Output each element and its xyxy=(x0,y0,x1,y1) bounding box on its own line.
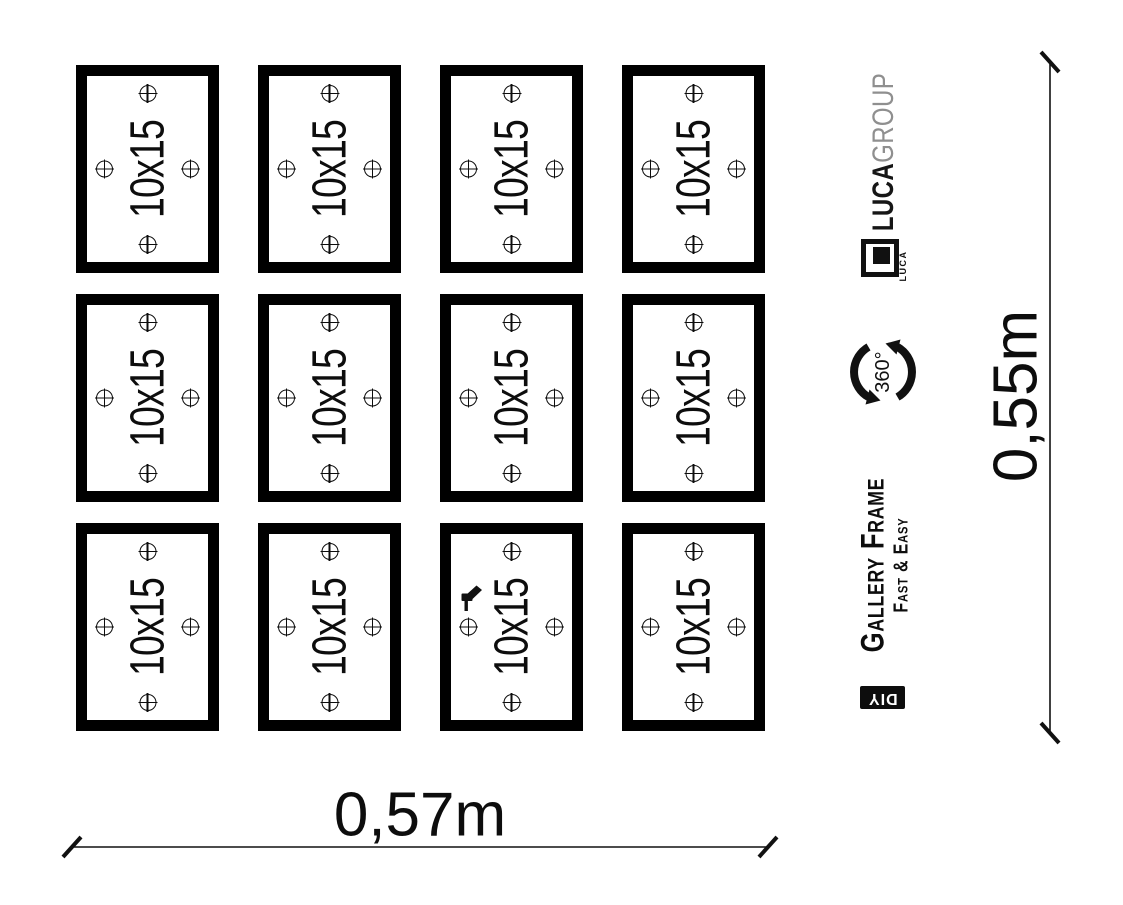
frame-size-label: 10x15 xyxy=(120,120,175,218)
photo-frame: 10x15 xyxy=(76,523,219,731)
layout-diagram: 10x15 10x15 10x15 10x15 xyxy=(0,0,1123,905)
photo-frame: 10x15 xyxy=(258,523,401,731)
crosshair-icon xyxy=(503,236,520,253)
drill-icon xyxy=(459,580,485,614)
crosshair-icon xyxy=(139,465,156,482)
crosshair-icon xyxy=(503,85,520,102)
width-dimension-label: 0,57m xyxy=(334,780,506,851)
brand-suffix: GROUP xyxy=(867,73,900,163)
frame-size-label: 10x15 xyxy=(484,120,539,218)
photo-frame: 10x15 xyxy=(622,523,765,731)
diy-label: DIY xyxy=(868,689,898,707)
product-wordmark: Gallery Frame Fast & Easy xyxy=(857,478,912,653)
frame-size-label: 10x15 xyxy=(302,120,357,218)
crosshair-icon xyxy=(685,85,702,102)
frame-size-label: 10x15 xyxy=(484,349,539,447)
crosshair-icon xyxy=(278,161,295,178)
crosshair-icon xyxy=(503,694,520,711)
crosshair-icon xyxy=(96,161,113,178)
crosshair-icon xyxy=(321,236,338,253)
diy-badge: DIY xyxy=(860,686,905,709)
crosshair-icon xyxy=(728,619,745,636)
crosshair-icon xyxy=(642,619,659,636)
frame-grid: 10x15 10x15 10x15 10x15 xyxy=(76,65,765,731)
crosshair-icon xyxy=(685,314,702,331)
frame-size-label: 10x15 xyxy=(302,578,357,676)
frame-size-label: 10x15 xyxy=(666,578,721,676)
crosshair-icon xyxy=(642,390,659,407)
product-name: Gallery Frame xyxy=(857,478,889,653)
height-dimension-label: 0,55m xyxy=(981,310,1052,482)
brand-logo-square xyxy=(873,247,890,264)
crosshair-icon xyxy=(321,465,338,482)
rotation-degrees-label: 360° xyxy=(872,351,894,392)
photo-frame: 10x15 xyxy=(440,294,583,502)
crosshair-icon xyxy=(728,390,745,407)
frame-size-label: 10x15 xyxy=(484,578,539,676)
crosshair-icon xyxy=(685,694,702,711)
crosshair-icon xyxy=(728,161,745,178)
crosshair-icon xyxy=(96,619,113,636)
photo-frame: 10x15 xyxy=(440,523,583,731)
crosshair-icon xyxy=(139,236,156,253)
crosshair-icon xyxy=(503,543,520,560)
crosshair-icon xyxy=(96,390,113,407)
crosshair-icon xyxy=(321,85,338,102)
frame-size-label: 10x15 xyxy=(120,578,175,676)
brand-wordmark: LUCAGROUP xyxy=(867,73,901,231)
frame-size-label: 10x15 xyxy=(666,349,721,447)
crosshair-icon xyxy=(139,694,156,711)
crosshair-icon xyxy=(503,465,520,482)
photo-frame: 10x15 xyxy=(622,65,765,273)
crosshair-icon xyxy=(364,619,381,636)
crosshair-icon xyxy=(685,465,702,482)
crosshair-icon xyxy=(546,161,563,178)
crosshair-icon xyxy=(139,543,156,560)
crosshair-icon xyxy=(364,390,381,407)
crosshair-icon xyxy=(321,543,338,560)
photo-frame: 10x15 xyxy=(76,65,219,273)
crosshair-icon xyxy=(685,543,702,560)
brand-logo-caption: LUCA xyxy=(898,251,908,282)
photo-frame: 10x15 xyxy=(76,294,219,502)
brand-name: LUCA xyxy=(867,163,900,231)
crosshair-icon xyxy=(685,236,702,253)
crosshair-icon xyxy=(182,161,199,178)
frame-size-label: 10x15 xyxy=(302,349,357,447)
rotation-arrows-icon: 360° xyxy=(844,333,922,411)
brand-logo-icon xyxy=(861,239,899,277)
crosshair-icon xyxy=(139,85,156,102)
crosshair-icon xyxy=(278,390,295,407)
crosshair-icon xyxy=(503,314,520,331)
crosshair-icon xyxy=(460,161,477,178)
frame-size-label: 10x15 xyxy=(120,349,175,447)
crosshair-icon xyxy=(321,694,338,711)
crosshair-icon xyxy=(460,390,477,407)
frame-size-label: 10x15 xyxy=(666,120,721,218)
product-tagline: Fast & Easy xyxy=(892,478,912,653)
photo-frame: 10x15 xyxy=(440,65,583,273)
crosshair-icon xyxy=(139,314,156,331)
photo-frame: 10x15 xyxy=(622,294,765,502)
crosshair-icon xyxy=(182,619,199,636)
crosshair-icon xyxy=(546,619,563,636)
photo-frame: 10x15 xyxy=(258,294,401,502)
crosshair-icon xyxy=(642,161,659,178)
crosshair-icon xyxy=(364,161,381,178)
crosshair-icon xyxy=(182,390,199,407)
crosshair-icon xyxy=(321,314,338,331)
crosshair-icon xyxy=(546,390,563,407)
crosshair-icon xyxy=(278,619,295,636)
photo-frame: 10x15 xyxy=(258,65,401,273)
crosshair-icon xyxy=(460,619,477,636)
